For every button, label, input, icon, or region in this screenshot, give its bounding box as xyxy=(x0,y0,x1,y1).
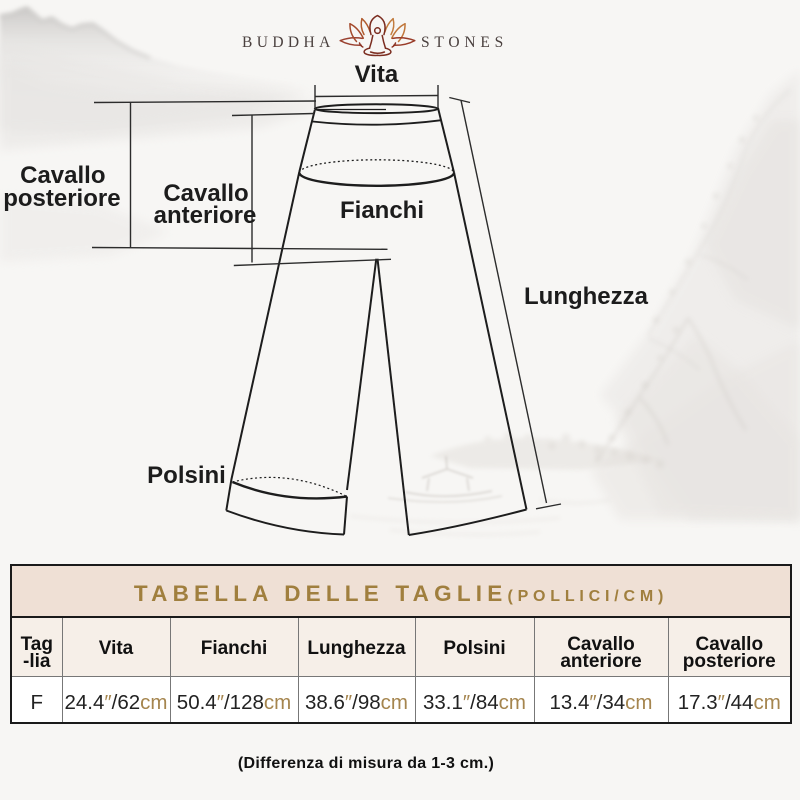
svg-text:anteriore: anteriore xyxy=(154,202,257,229)
svg-text:Lunghezza: Lunghezza xyxy=(524,283,649,310)
svg-text:posteriore: posteriore xyxy=(3,185,120,212)
svg-text:Polsini: Polsini xyxy=(147,462,226,489)
svg-text:Fianchi: Fianchi xyxy=(340,197,424,224)
svg-text:Vita: Vita xyxy=(355,61,399,88)
